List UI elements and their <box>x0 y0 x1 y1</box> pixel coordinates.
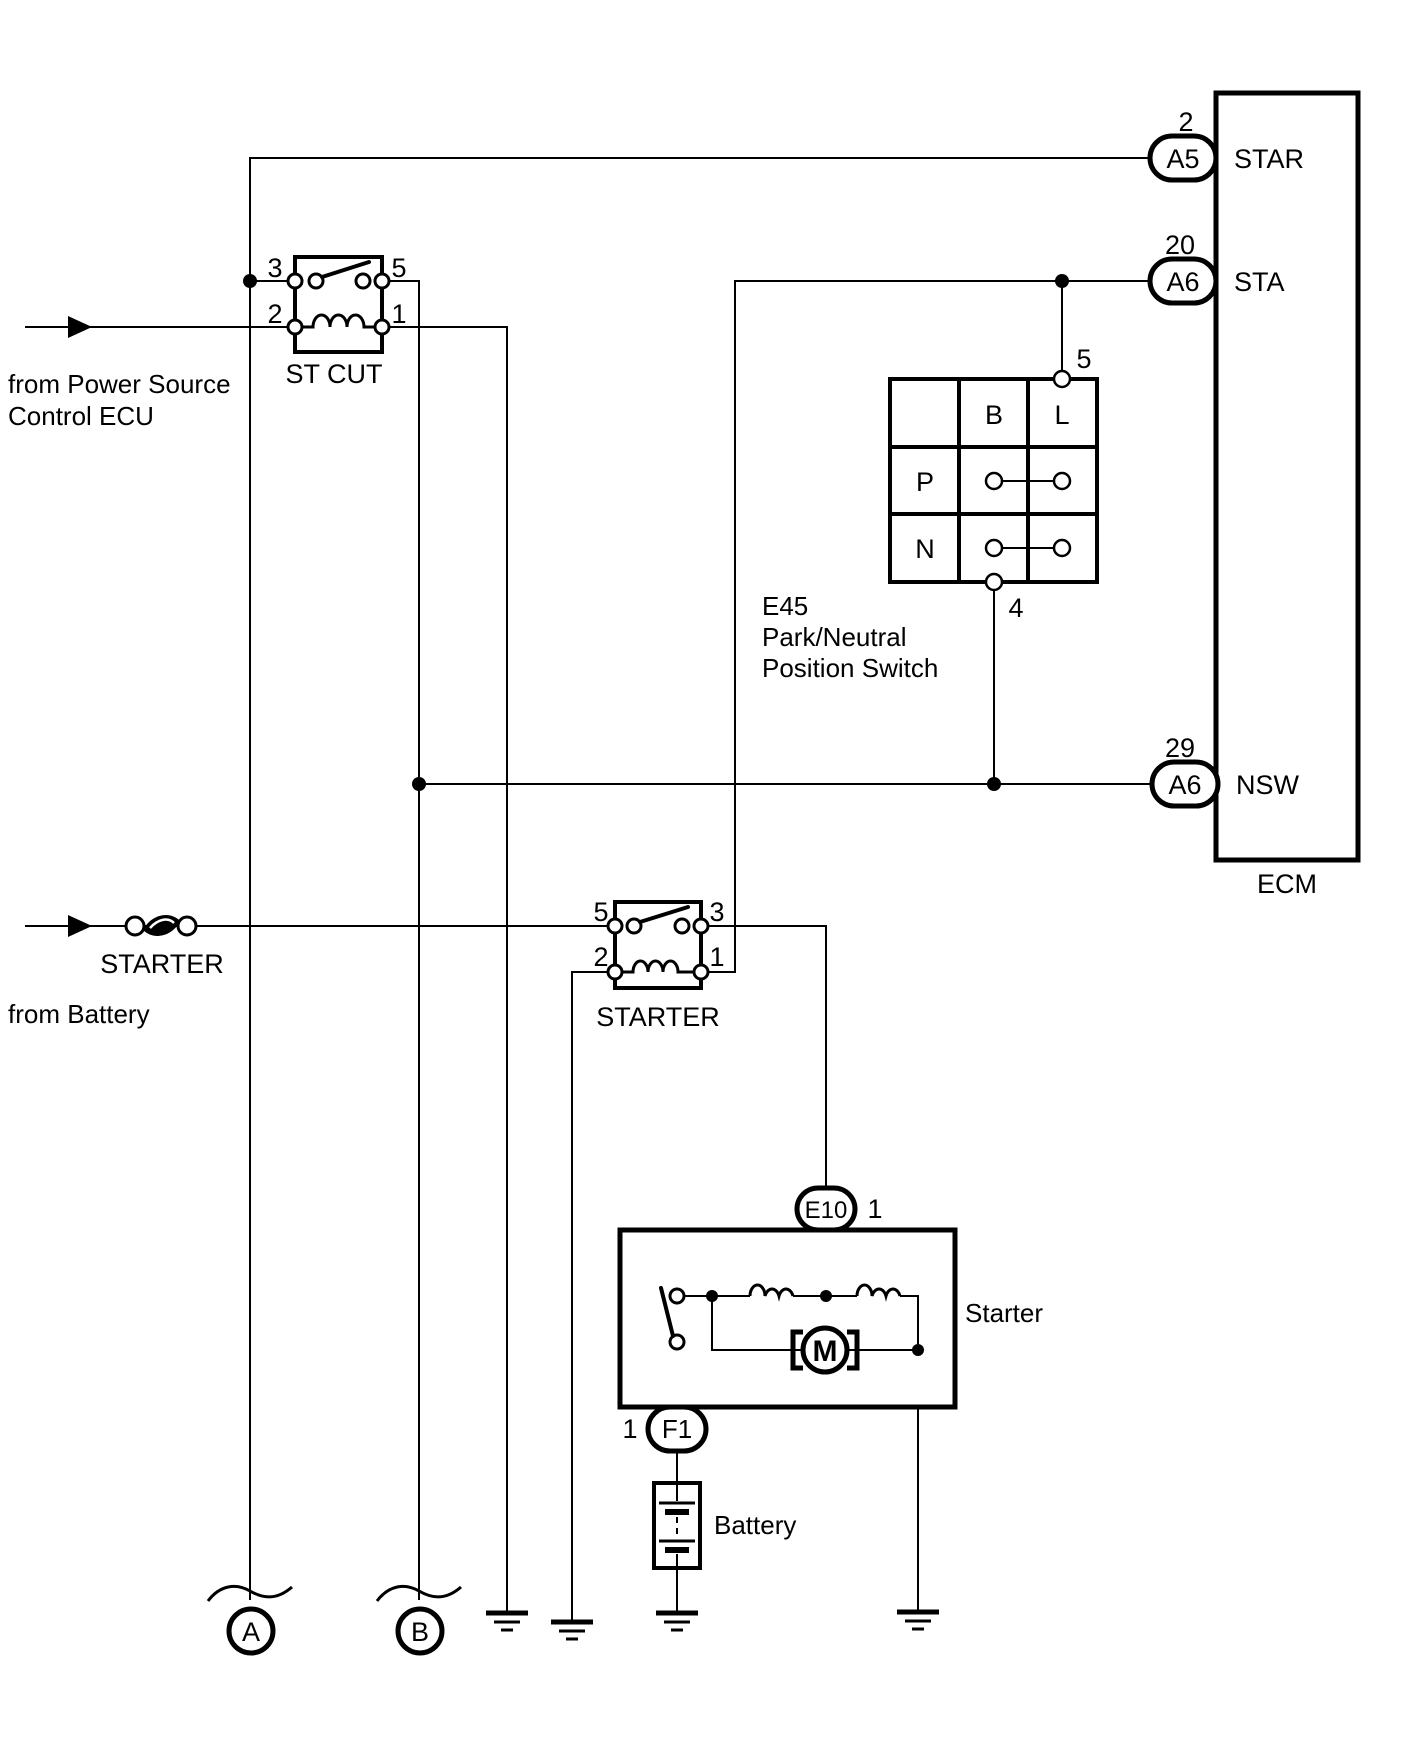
arrow-power-source <box>68 316 92 338</box>
starter-relay-pin2-number: 2 <box>593 942 608 972</box>
st-cut-pin-5 <box>375 274 389 288</box>
pnp-terminal-4 <box>986 574 1002 590</box>
fuse-label: STARTER <box>100 949 224 979</box>
pnp-pin4-number: 4 <box>1008 593 1023 623</box>
junction-coil-e10 <box>820 1290 832 1302</box>
starter-relay-coil <box>622 961 694 972</box>
connector-a6-sta-label: A6 <box>1166 267 1199 297</box>
pnp-row-p: P <box>916 467 934 497</box>
pnp-id: E45 <box>762 591 808 621</box>
junction-pnp4-nsw <box>987 777 1001 791</box>
starter-circuit-diagram: 2 A5 STAR 20 A6 STA 29 A6 NSW ECM 3 5 2 … <box>0 0 1424 1763</box>
junction-nsw-refb <box>412 777 426 791</box>
junction-stcut-pin3 <box>243 274 257 288</box>
signal-nsw: NSW <box>1236 770 1300 800</box>
fuse-element <box>143 915 180 936</box>
e10-pin-number: 1 <box>867 1194 882 1224</box>
st-cut-pin-3 <box>288 274 302 288</box>
power-source-note-line2: Control ECU <box>8 401 154 431</box>
starter-switch-top-contact <box>670 1289 684 1303</box>
junction-coil-left <box>706 1290 718 1302</box>
f1-pin-number: 1 <box>622 1414 637 1444</box>
connector-a5-label: A5 <box>1166 144 1199 174</box>
pnp-terminal-5 <box>1054 371 1070 387</box>
starter-relay-pin3-number: 3 <box>709 897 724 927</box>
starter-relay-pin-3 <box>694 919 708 933</box>
ecm-pin2-number: 2 <box>1178 107 1193 137</box>
ecm-pin29-number: 29 <box>1165 733 1195 763</box>
st-cut-contact-right <box>356 274 370 288</box>
battery-label: Battery <box>714 1510 796 1540</box>
starter-relay-pin-5 <box>608 919 622 933</box>
junction-pnp5-sta <box>1055 274 1069 288</box>
starter-relay-contact-right <box>675 919 689 933</box>
starter-relay-pin5-number: 5 <box>593 897 608 927</box>
fuse-terminal-right <box>178 917 196 935</box>
ground-symbol-stcut <box>486 1613 528 1630</box>
starter-unit-label: Starter <box>965 1298 1043 1328</box>
connector-f1-label: F1 <box>662 1414 692 1444</box>
st-cut-coil <box>302 315 375 327</box>
pnp-row-n: N <box>915 534 935 564</box>
ground-symbol-battery <box>656 1613 698 1630</box>
pnp-contact-n-left <box>986 540 1002 556</box>
wire-stcut-pin5-to-ref-b <box>382 281 419 1600</box>
pnp-contact-p-left <box>986 473 1002 489</box>
st-cut-pin-2 <box>288 320 302 334</box>
starter-relay-pin-1 <box>694 965 708 979</box>
connector-e10-label: E10 <box>805 1197 848 1224</box>
pnp-col-l: L <box>1054 400 1069 430</box>
st-cut-pin5-number: 5 <box>391 253 406 283</box>
st-cut-pin2-number: 2 <box>267 299 282 329</box>
wire-starter-relay-pin2-to-ground <box>572 972 615 1620</box>
signal-star: STAR <box>1234 144 1304 174</box>
starter-relay-pin1-number: 1 <box>709 942 724 972</box>
pnp-name-line2: Position Switch <box>762 653 938 683</box>
from-battery-note: from Battery <box>8 999 150 1029</box>
starter-motor-letter: M <box>813 1335 838 1368</box>
ref-b-letter: B <box>411 1617 429 1647</box>
ref-a-letter: A <box>242 1617 260 1647</box>
ecm-label: ECM <box>1257 869 1317 899</box>
pnp-name-line1: Park/Neutral <box>762 622 907 652</box>
st-cut-pin-1 <box>375 320 389 334</box>
ground-symbol-starter-relay <box>551 1622 593 1639</box>
st-cut-pin3-number: 3 <box>267 253 282 283</box>
st-cut-pin1-number: 1 <box>391 299 406 329</box>
connector-a6-nsw-label: A6 <box>1168 770 1201 800</box>
ground-symbol-starter-motor <box>897 1612 939 1629</box>
ecm-pin20-number: 20 <box>1165 230 1195 260</box>
pnp-contact-p-right <box>1054 473 1070 489</box>
wiring-diagram-page: 2 A5 STAR 20 A6 STA 29 A6 NSW ECM 3 5 2 … <box>0 0 1424 1763</box>
signal-sta: STA <box>1234 267 1285 297</box>
wire-stcut-pin1-to-ground <box>382 327 507 1611</box>
pnp-pin5-number: 5 <box>1076 344 1091 374</box>
ecm-box <box>1216 93 1358 860</box>
pnp-contact-n-right <box>1054 540 1070 556</box>
starter-relay-pin-2 <box>608 965 622 979</box>
st-cut-label: ST CUT <box>285 359 382 389</box>
starter-relay-label: STARTER <box>596 1002 720 1032</box>
junction-motor-right <box>912 1344 924 1356</box>
fuse-terminal-left <box>126 917 144 935</box>
pnp-col-b: B <box>985 400 1003 430</box>
arrow-from-battery <box>68 915 92 937</box>
power-source-note-line1: from Power Source <box>8 369 231 399</box>
